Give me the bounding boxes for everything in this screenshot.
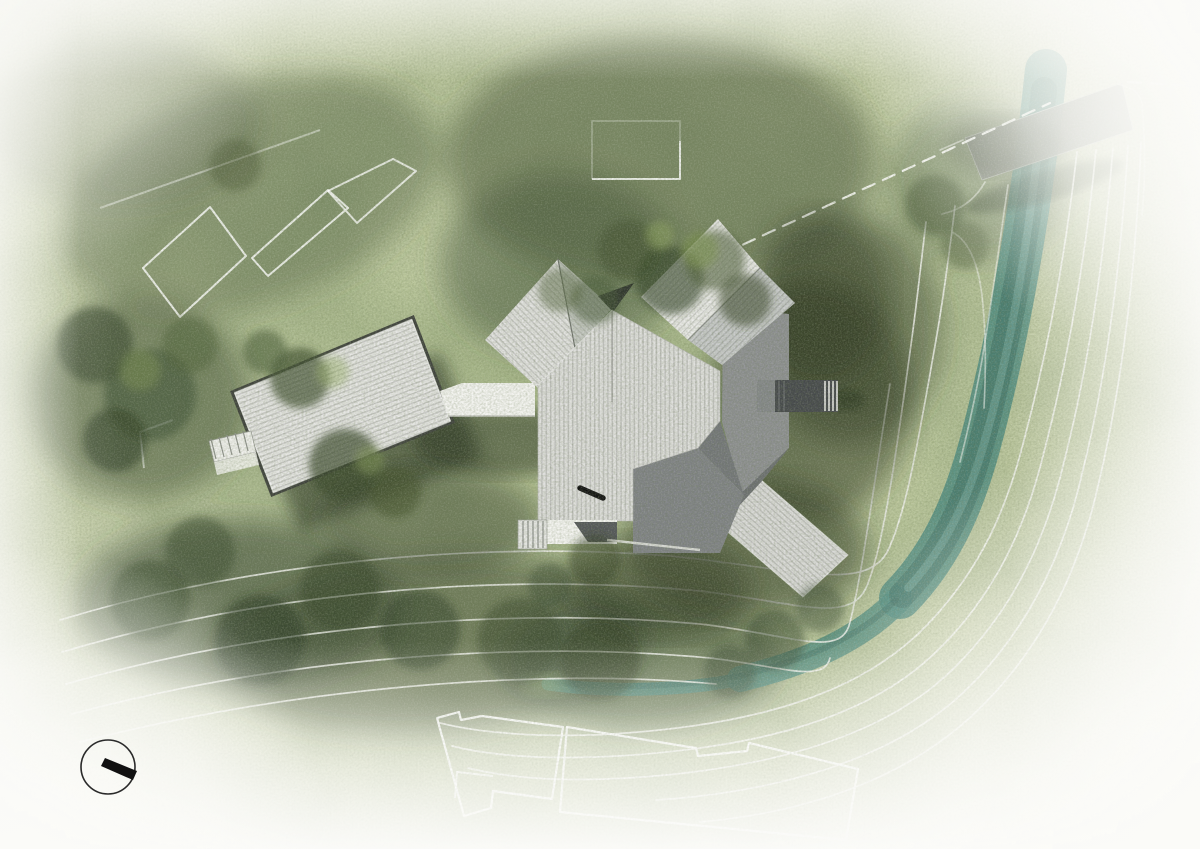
white-vignette xyxy=(0,0,1200,849)
site-plan-rendering xyxy=(0,0,1200,849)
site-plan-svg xyxy=(0,0,1200,849)
